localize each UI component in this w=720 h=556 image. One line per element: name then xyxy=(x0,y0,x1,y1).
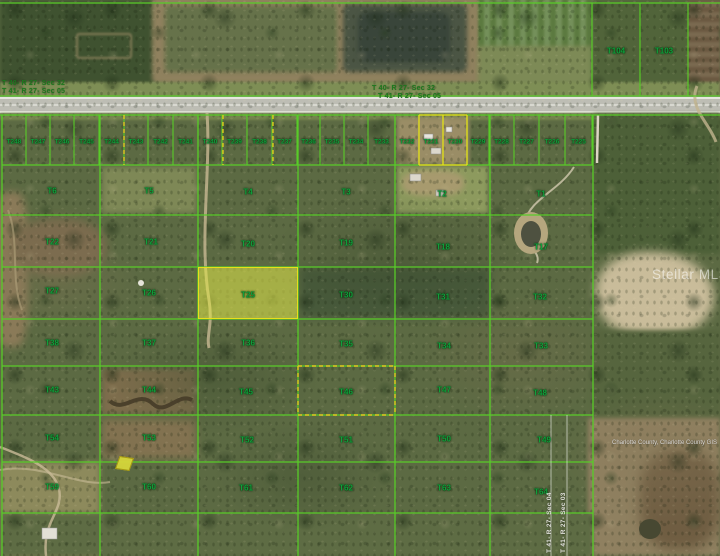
parcel-label: T30 xyxy=(339,291,353,300)
parcel-label: T38 xyxy=(45,339,59,348)
parcel-label: T18 xyxy=(436,243,450,252)
parcel-label: T47 xyxy=(437,386,451,395)
section-label-vertical-east: T 41- R 27- Sec 03 xyxy=(560,448,567,553)
stellar-mls-watermark: Stellar MLS xyxy=(652,267,720,282)
parcel-label: T6 xyxy=(47,187,56,196)
parcel-label: T50 xyxy=(437,435,451,444)
section-label-center-1: T 40- R 27- Sec 32 xyxy=(372,85,435,92)
parcel-label: T63 xyxy=(437,484,451,493)
parcel-label: T22 xyxy=(45,238,59,247)
parcel-label: T37 xyxy=(142,339,156,348)
parcel-label: T60 xyxy=(142,483,156,492)
parcel-label: T31 xyxy=(436,293,450,302)
parcel-label: T2 xyxy=(437,190,446,199)
parcel-label: T103 xyxy=(655,47,673,56)
parcel-label: T44 xyxy=(142,386,156,395)
parcel-label: T19 xyxy=(339,239,353,248)
parcel-labels-layer: T6T5T4T3T2T1T22T21T20T19T18T17T27T26T25T… xyxy=(0,0,720,556)
parcel-label: T59 xyxy=(45,483,59,492)
map-attribution: Charlotte County, Charlotte County GIS xyxy=(612,440,717,446)
parcel-label: T35 xyxy=(339,340,353,349)
section-label-topleft-1: T 40- R 27- Sec 32 xyxy=(2,80,65,87)
parcel-label: T61 xyxy=(239,484,253,493)
parcel-label: T62 xyxy=(339,484,353,493)
parcel-label: T51 xyxy=(339,436,353,445)
parcel-label: T27 xyxy=(45,287,59,296)
parcel-label: T5 xyxy=(144,187,153,196)
parcel-label: T52 xyxy=(240,436,254,445)
parcel-label: T46 xyxy=(339,388,353,397)
parcel-label: T45 xyxy=(239,388,253,397)
parcel-label: T36 xyxy=(241,339,255,348)
parcel-label: T104 xyxy=(607,47,625,56)
parcel-label: T54 xyxy=(45,434,59,443)
parcel-label: T34 xyxy=(437,342,451,351)
parcel-label: T3 xyxy=(341,188,350,197)
section-label-center-2: T 41- R 27- Sec 05 xyxy=(378,93,441,100)
parcel-label: T25 xyxy=(241,291,255,300)
parcel-label: T32 xyxy=(533,293,547,302)
parcel-label: T21 xyxy=(144,238,158,247)
section-label-vertical-west: T 41- R 27- Sec 04 xyxy=(546,448,553,553)
parcel-label: T26 xyxy=(142,289,156,298)
parcel-label: T20 xyxy=(241,240,255,249)
parcel-label: T1 xyxy=(536,190,545,199)
parcel-label: T33 xyxy=(534,342,548,351)
parcel-label: T4 xyxy=(243,188,252,197)
aerial-parcel-map[interactable]: T248T247T246T245T244T243T242T241T240T239… xyxy=(0,0,720,556)
parcel-label: T49 xyxy=(537,436,551,445)
parcel-label: T43 xyxy=(45,386,59,395)
section-label-topleft-2: T 41- R 27- Sec 05 xyxy=(2,88,65,95)
parcel-label: T48 xyxy=(533,389,547,398)
parcel-label: T17 xyxy=(534,243,548,252)
parcel-label: T53 xyxy=(142,434,156,443)
